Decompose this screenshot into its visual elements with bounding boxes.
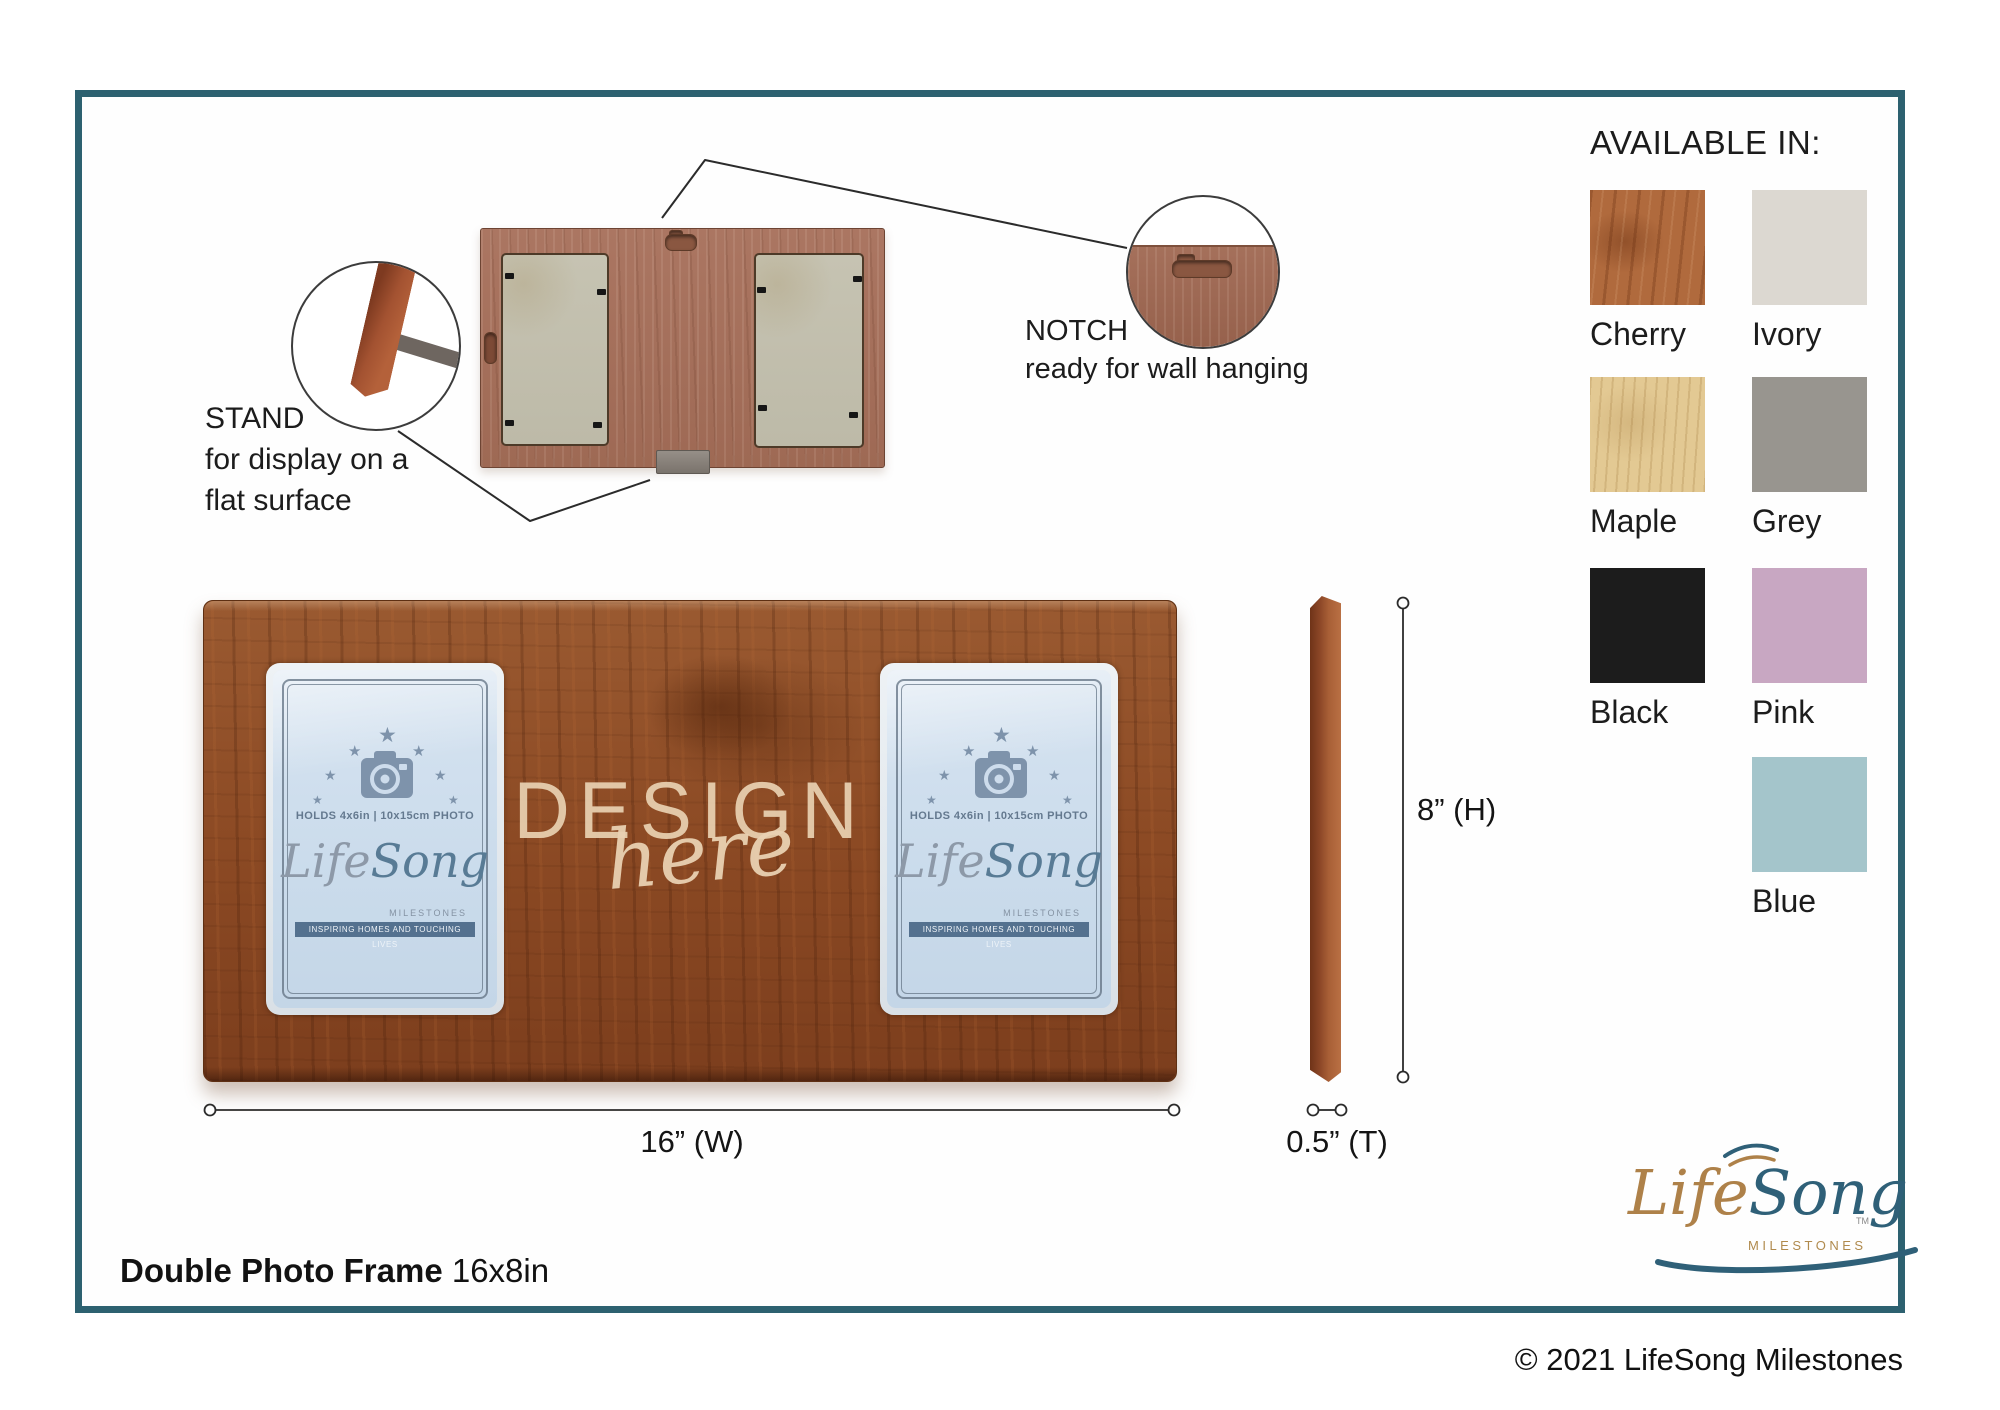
clip (849, 412, 858, 418)
placeholder-brand: LifeSong (887, 836, 1111, 886)
swatch-label-pink: Pink (1752, 694, 1814, 731)
placeholder-banner: INSPIRING HOMES AND TOUCHING LIVES (909, 922, 1089, 937)
dimension-height-label: 8” (H) (1417, 792, 1496, 828)
swatch-grey (1752, 377, 1867, 492)
svg-text:★: ★ (412, 742, 425, 760)
svg-text:★: ★ (378, 723, 397, 747)
hanging-notch-cutout (665, 234, 697, 251)
svg-text:★: ★ (938, 768, 951, 784)
svg-text:★: ★ (1048, 768, 1061, 784)
svg-text:★: ★ (434, 768, 447, 784)
backing-board-right (754, 253, 864, 448)
product-title-size: 16x8in (443, 1252, 549, 1289)
swatch-label-cherry: Cherry (1590, 316, 1686, 353)
svg-text:★: ★ (1062, 793, 1073, 807)
swatch-label-maple: Maple (1590, 503, 1677, 540)
holds-photo-text: HOLDS 4x6in | 10x15cm PHOTO (273, 810, 497, 822)
svg-text:★: ★ (312, 793, 323, 807)
swatch-maple (1590, 377, 1705, 492)
swatch-ivory (1752, 190, 1867, 305)
placeholder-brand-sub: MILESTONES (389, 908, 467, 918)
svg-text:★: ★ (1026, 742, 1039, 760)
swatch-blue (1752, 757, 1867, 872)
stand-desc-line1: for display on a (205, 439, 408, 480)
svg-text:★: ★ (962, 742, 975, 760)
dimension-thickness-label: 0.5” (T) (1257, 1124, 1417, 1160)
product-title: Double Photo Frame 16x8in (120, 1252, 549, 1290)
clip (757, 287, 766, 293)
photo-placeholder: ★ ★ ★ ★ ★ ★ ★ HOLDS 4x6in | 10x (887, 670, 1111, 1008)
notch-title: NOTCH (1025, 312, 1309, 350)
swatch-label-black: Black (1590, 694, 1668, 731)
clip (505, 420, 514, 426)
backing-board-left (501, 253, 609, 446)
swatch-black (1590, 568, 1705, 683)
photo-slot-left: ★ ★ ★ ★ ★ ★ ★ HOLDS 4x6in | 10x (266, 663, 504, 1015)
stand-wood-icon (348, 261, 419, 401)
brand-logo-swoosh-icon (1630, 1130, 1930, 1290)
stand-block (656, 450, 710, 474)
svg-text:★: ★ (992, 723, 1011, 747)
placeholder-banner: INSPIRING HOMES AND TOUCHING LIVES (295, 922, 475, 937)
swatch-label-grey: Grey (1752, 503, 1821, 540)
svg-text:★: ★ (448, 793, 459, 807)
stand-desc-line2: flat surface (205, 480, 408, 521)
keyhole-slot (484, 332, 497, 364)
clip (758, 405, 767, 411)
svg-text:★: ★ (324, 768, 337, 784)
stand-title: STAND (205, 398, 408, 439)
photo-slot-right: ★ ★ ★ ★ ★ ★ ★ HOLDS 4x6in | 10x (880, 663, 1118, 1015)
frame-back-view (480, 228, 885, 468)
svg-text:★: ★ (348, 742, 361, 760)
product-title-name: Double Photo Frame (120, 1252, 443, 1289)
notch-desc: ready for wall hanging (1025, 350, 1309, 388)
dimension-width-label: 16” (W) (592, 1124, 792, 1160)
swatch-label-ivory: Ivory (1752, 316, 1821, 353)
notch-callout-text: NOTCH ready for wall hanging (1025, 312, 1309, 388)
clip (853, 276, 862, 282)
photo-placeholder: ★ ★ ★ ★ ★ ★ ★ HOLDS 4x6in | 10x (273, 670, 497, 1008)
svg-text:★: ★ (926, 793, 937, 807)
swatch-pink (1752, 568, 1867, 683)
product-infographic: STAND for display on a flat surface NOTC… (0, 0, 2000, 1410)
clip (593, 422, 602, 428)
stand-callout-text: STAND for display on a flat surface (205, 398, 408, 521)
copyright-text: © 2021 LifeSong Milestones (1400, 1342, 1903, 1378)
swatch-label-blue: Blue (1752, 883, 1816, 920)
frame-side-view (1310, 596, 1341, 1082)
clip (597, 289, 606, 295)
swatch-cherry (1590, 190, 1705, 305)
camera-stars-icon: ★ ★ ★ ★ ★ ★ ★ (924, 720, 1074, 812)
camera-stars-icon: ★ ★ ★ ★ ★ ★ ★ (310, 720, 460, 812)
available-in-heading: AVAILABLE IN: (1590, 124, 1821, 162)
placeholder-brand: LifeSong (273, 836, 497, 886)
placeholder-brand-sub: MILESTONES (1003, 908, 1081, 918)
holds-photo-text: HOLDS 4x6in | 10x15cm PHOTO (887, 810, 1111, 822)
notch-slot-icon (1172, 260, 1232, 278)
clip (505, 273, 514, 279)
